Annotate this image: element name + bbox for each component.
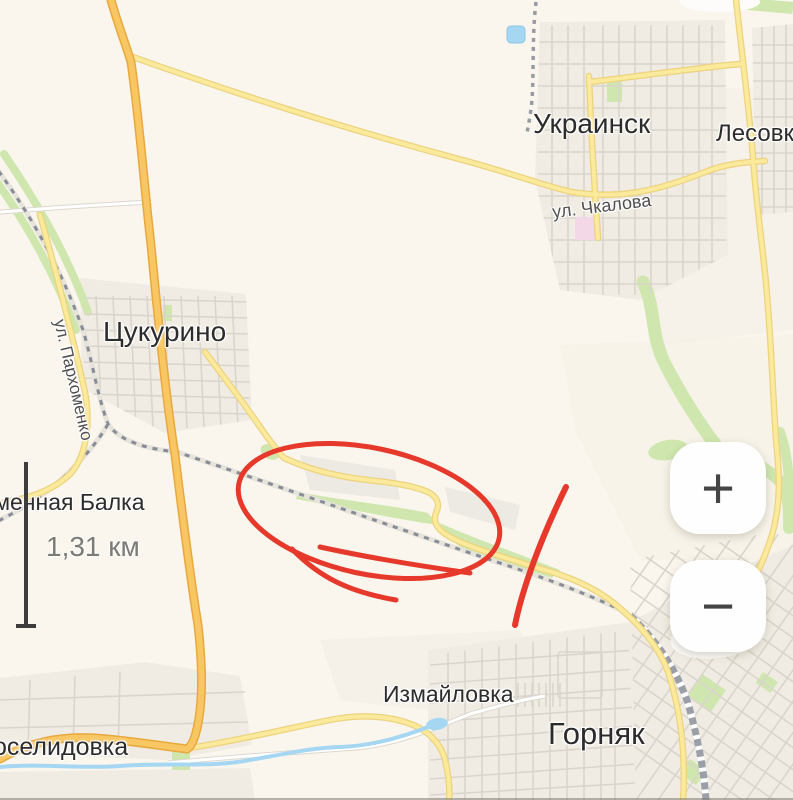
town-label-izmaylovka: Измайловка: [383, 681, 514, 708]
scale-distance-label: 1,31 км: [46, 531, 140, 563]
area-label-kamennaya-balka: Каменная Балка: [0, 489, 145, 516]
zoom-out-button[interactable]: −: [670, 560, 766, 652]
map-artwork: [0, 0, 793, 800]
town-label-novoselidovka: Новоселидовка: [0, 733, 128, 762]
pond: [507, 26, 525, 43]
building-top-right: [680, 0, 760, 12]
map-canvas[interactable]: Украинск Лесовка Цукурино Горняк Измайло…: [0, 0, 793, 800]
town-label-gornyak: Горняк: [548, 716, 645, 752]
scale-bar-tick: [16, 624, 36, 628]
scale-bar: [24, 462, 28, 626]
town-label-ukrainsk: Украинск: [533, 108, 650, 140]
town-label-tsukurino: Цукурино: [103, 316, 226, 348]
town-label-lesovka: Лесовка: [716, 120, 793, 148]
zoom-in-button[interactable]: +: [670, 442, 766, 534]
